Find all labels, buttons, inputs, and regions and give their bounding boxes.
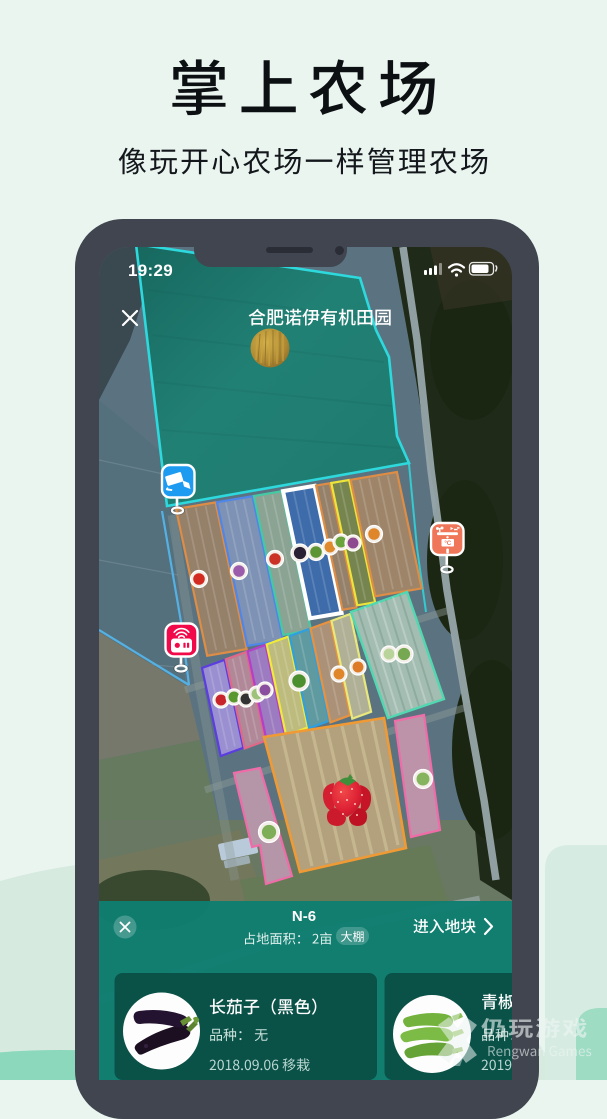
svg-text:N-6: N-6 bbox=[292, 908, 316, 925]
svg-text:19:29: 19:29 bbox=[128, 261, 173, 280]
svg-text:°C: °C bbox=[444, 540, 451, 547]
